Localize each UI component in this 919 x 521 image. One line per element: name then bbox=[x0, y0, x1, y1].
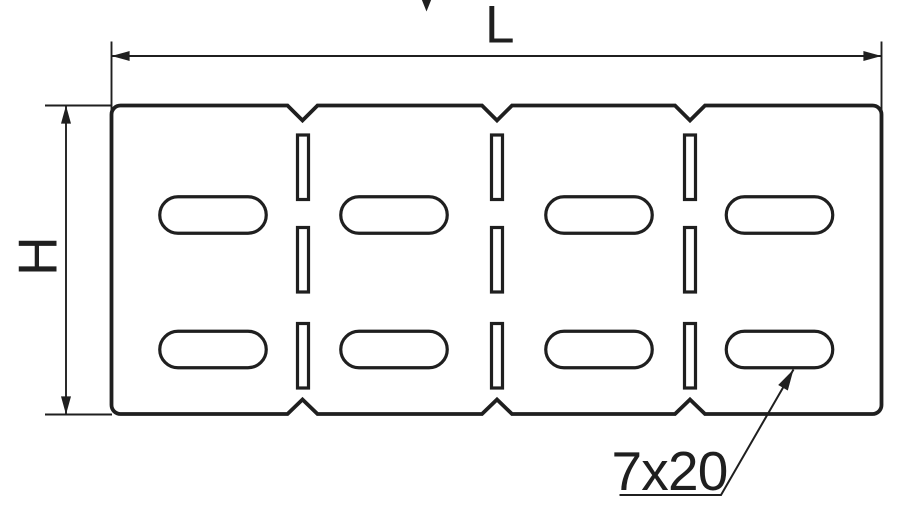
svg-text:L: L bbox=[485, 0, 514, 55]
svg-text:H: H bbox=[7, 236, 69, 276]
svg-text:7x20: 7x20 bbox=[612, 440, 728, 502]
